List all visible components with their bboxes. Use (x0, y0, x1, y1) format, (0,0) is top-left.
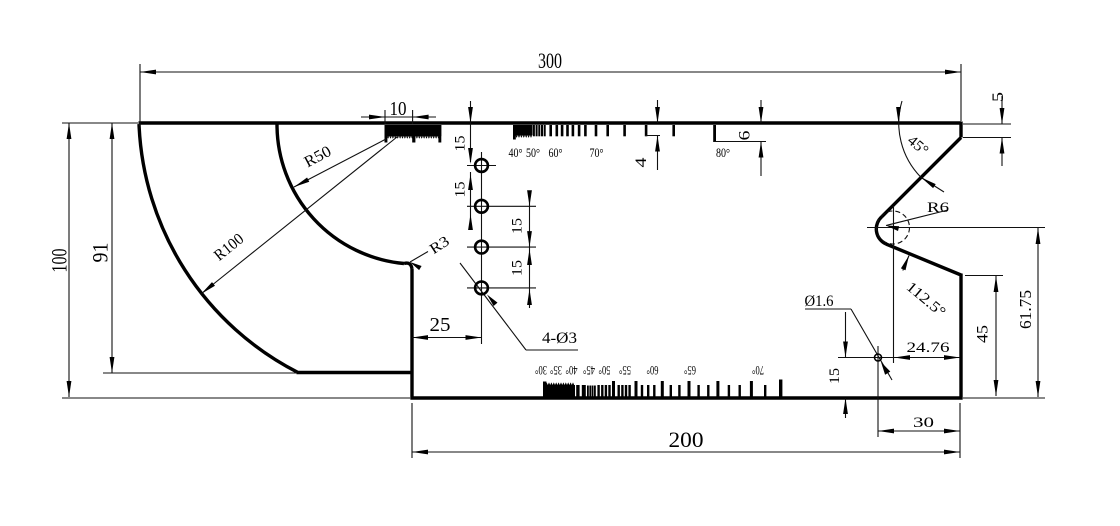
svg-text:40°: 40° (509, 145, 523, 160)
svg-text:15: 15 (453, 136, 469, 152)
svg-text:15: 15 (510, 218, 526, 234)
svg-text:300: 300 (538, 48, 562, 73)
svg-text:50°: 50° (599, 363, 611, 378)
svg-text:24.76: 24.76 (907, 340, 951, 356)
svg-text:15: 15 (510, 260, 526, 276)
svg-text:200: 200 (669, 427, 704, 452)
svg-text:40°: 40° (566, 363, 578, 378)
svg-text:61.75: 61.75 (1016, 290, 1035, 329)
svg-text:91: 91 (88, 243, 113, 263)
svg-text:30°: 30° (535, 363, 547, 378)
svg-text:10: 10 (390, 98, 407, 120)
svg-text:100: 100 (47, 249, 72, 273)
svg-text:45: 45 (975, 325, 992, 343)
svg-text:35°: 35° (550, 363, 562, 378)
svg-text:4: 4 (633, 158, 650, 168)
svg-text:R6: R6 (927, 200, 950, 216)
svg-text:45°: 45° (583, 363, 595, 378)
svg-text:80°: 80° (716, 145, 730, 160)
svg-text:50°: 50° (526, 145, 540, 160)
svg-text:65°: 65° (684, 363, 696, 378)
svg-text:4-Ø3: 4-Ø3 (542, 330, 577, 347)
svg-text:60°: 60° (647, 363, 659, 378)
svg-text:70°: 70° (752, 363, 764, 378)
svg-text:15: 15 (453, 182, 469, 198)
svg-text:70°: 70° (590, 145, 604, 160)
svg-text:30: 30 (913, 415, 934, 431)
svg-text:15: 15 (827, 368, 843, 384)
svg-text:5: 5 (990, 92, 1007, 102)
svg-text:Ø1.6: Ø1.6 (805, 293, 834, 310)
svg-text:6: 6 (737, 131, 754, 141)
svg-text:60°: 60° (549, 145, 563, 160)
svg-text:55°: 55° (619, 363, 631, 378)
svg-text:25: 25 (430, 314, 451, 336)
